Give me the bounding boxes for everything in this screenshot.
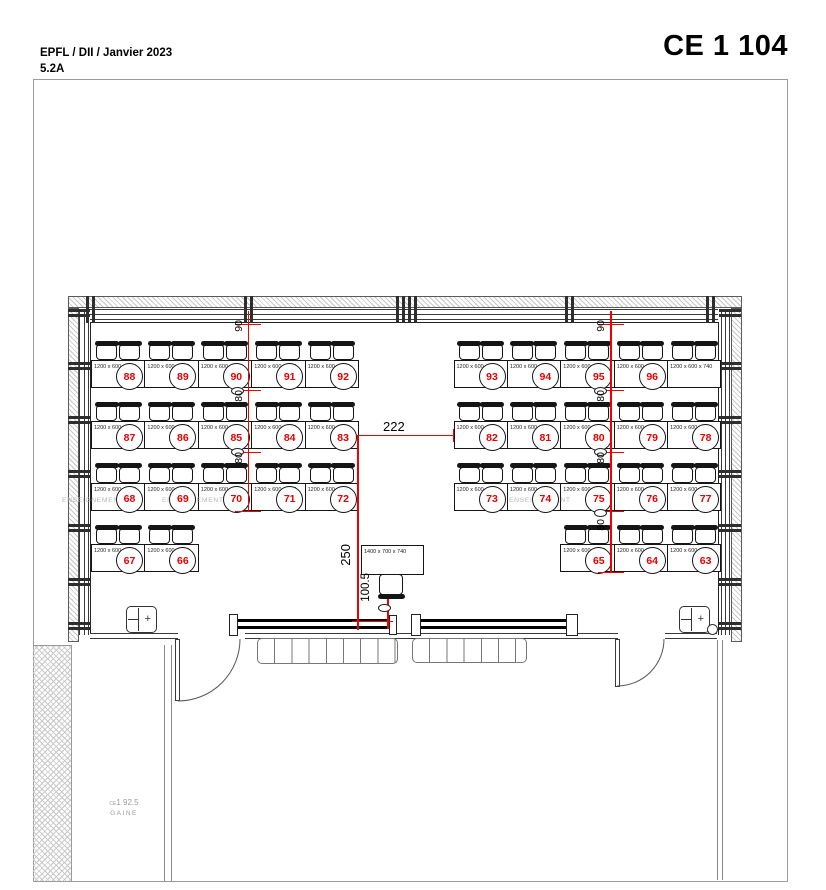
student-chair <box>172 405 193 421</box>
student-chair <box>149 467 170 483</box>
dimension-text-front: 250 <box>338 544 353 566</box>
student-chair <box>203 344 224 360</box>
student-chair <box>588 405 609 421</box>
student-chair <box>588 467 609 483</box>
student-chair <box>310 405 331 421</box>
student-chair <box>333 467 354 483</box>
student-chair <box>695 344 716 360</box>
student-chair <box>149 405 170 421</box>
student-chair <box>226 405 247 421</box>
shaft-code-number: 1 92.5 <box>116 798 138 807</box>
teacher-chair <box>379 574 403 595</box>
student-chair <box>256 467 277 483</box>
student-chair <box>119 405 140 421</box>
student-chair <box>535 405 556 421</box>
student-chair <box>695 405 716 421</box>
control-box-panel <box>128 608 139 631</box>
student-chair <box>333 344 354 360</box>
control-box-left <box>126 606 157 633</box>
door-stop-icon <box>707 624 718 635</box>
student-chair <box>119 528 140 544</box>
blackboard-left-bracket <box>389 615 397 635</box>
student-chair <box>642 405 663 421</box>
student-chair <box>256 344 277 360</box>
floor-box-icon <box>378 604 391 612</box>
student-chair <box>203 467 224 483</box>
blackboard-left-bracket <box>229 614 238 636</box>
student-chair <box>96 344 117 360</box>
student-chair <box>226 344 247 360</box>
student-chair <box>310 467 331 483</box>
student-chair <box>565 467 586 483</box>
dimension-text-right: 90 <box>595 320 607 332</box>
student-chair <box>459 467 480 483</box>
student-chair <box>482 405 503 421</box>
student-chair <box>459 405 480 421</box>
student-chair <box>96 467 117 483</box>
seat-number-88: 88 <box>116 363 143 390</box>
dimension-line-left-column <box>248 311 250 512</box>
seat-number-94: 94 <box>532 363 559 390</box>
dimension-text-aisle: 222 <box>383 419 405 434</box>
seat-number-76: 76 <box>639 486 666 513</box>
gaine-shaft-label: CE1 92.5 GAINE <box>93 798 155 817</box>
seat-number-85: 85 <box>223 424 250 451</box>
student-chair <box>619 405 640 421</box>
seat-number-68: 68 <box>116 486 143 513</box>
floor-box-icon <box>594 509 607 517</box>
seat-number-79: 79 <box>639 424 666 451</box>
student-chair <box>565 405 586 421</box>
student-chair <box>672 405 693 421</box>
blackboard-right <box>421 626 567 629</box>
dimension-text-right: 80 <box>595 452 607 464</box>
student-chair <box>672 467 693 483</box>
student-chair <box>535 467 556 483</box>
dimension-line-right-column <box>610 311 612 573</box>
student-chair <box>695 467 716 483</box>
blackboard-right <box>421 619 567 622</box>
dimension-line-front <box>357 435 359 630</box>
dimension-tick <box>235 511 261 513</box>
student-chair <box>96 405 117 421</box>
student-chair <box>619 528 640 544</box>
student-chair <box>695 528 716 544</box>
door-arc-right <box>617 639 664 686</box>
teacher-table-dim-label: 1400 x 700 x 740 <box>364 549 406 555</box>
student-chair <box>119 344 140 360</box>
student-chair <box>588 344 609 360</box>
student-chair <box>149 344 170 360</box>
seat-number-74: 74 <box>532 486 559 513</box>
student-chair <box>512 405 533 421</box>
student-chair <box>535 344 556 360</box>
zone-label-enseignement: ENSEIGNEMENT <box>62 497 124 504</box>
seat-number-73: 73 <box>479 486 506 513</box>
seat-number-78: 78 <box>692 424 719 451</box>
dimension-tick <box>453 429 455 442</box>
blackboard-right-bracket <box>566 614 578 636</box>
student-chair <box>203 405 224 421</box>
dimension-text-board: 100.5 <box>360 573 372 602</box>
seat-number-77: 77 <box>692 486 719 513</box>
seat-number-71: 71 <box>276 486 303 513</box>
student-chair <box>310 344 331 360</box>
blackboard-left <box>238 626 394 629</box>
seat-number-64: 64 <box>639 547 666 574</box>
seat-number-92: 92 <box>330 363 357 390</box>
control-box-panel <box>681 608 692 631</box>
seat-number-90: 90 <box>223 363 250 390</box>
seat-number-96: 96 <box>639 363 666 390</box>
desk-dim-label: 1200 x 600 x 740 <box>670 364 712 370</box>
seat-number-67: 67 <box>116 547 143 574</box>
seat-number-83: 83 <box>330 424 357 451</box>
dimension-line-aisle <box>358 435 454 437</box>
seat-number-81: 81 <box>532 424 559 451</box>
dimension-text-right: 80 <box>595 390 607 402</box>
student-chair <box>642 467 663 483</box>
control-box-right <box>679 606 710 633</box>
shaft-room-code: CE1 92.5 <box>93 798 155 807</box>
student-chair <box>512 467 533 483</box>
door-arc-left <box>178 639 240 701</box>
student-chair <box>672 528 693 544</box>
student-chair <box>172 467 193 483</box>
student-chair <box>226 467 247 483</box>
student-chair <box>279 405 300 421</box>
student-chair <box>619 344 640 360</box>
seat-number-72: 72 <box>330 486 357 513</box>
student-chair <box>565 344 586 360</box>
student-chair <box>642 528 663 544</box>
seat-number-93: 93 <box>479 363 506 390</box>
shaft-name: GAINE <box>93 810 155 817</box>
seat-number-69: 69 <box>169 486 196 513</box>
seat-number-63: 63 <box>692 547 719 574</box>
floor-plan-canvas: EPFL / DII / Janvier 2023 5.2A CE 1 104 <box>0 0 826 890</box>
seat-number-87: 87 <box>116 424 143 451</box>
student-chair <box>482 344 503 360</box>
student-chair <box>256 405 277 421</box>
student-chair <box>172 344 193 360</box>
student-chair <box>279 467 300 483</box>
student-chair <box>149 528 170 544</box>
dimension-text-right: 80 <box>595 519 607 531</box>
teacher-table: 1400 x 700 x 740 <box>361 545 424 575</box>
desk: 1200 x 600 x 740 <box>667 360 721 388</box>
student-chair <box>333 405 354 421</box>
student-chair <box>172 528 193 544</box>
dimension-text-left: 80 <box>233 452 245 464</box>
seat-number-70: 70 <box>223 486 250 513</box>
student-chair <box>119 467 140 483</box>
seat-number-84: 84 <box>276 424 303 451</box>
dimension-tick <box>598 572 624 574</box>
student-chair <box>512 344 533 360</box>
student-chair <box>672 344 693 360</box>
dimension-text-left: 80 <box>233 390 245 402</box>
seat-number-82: 82 <box>479 424 506 451</box>
student-chair <box>279 344 300 360</box>
student-chair <box>96 528 117 544</box>
student-chair <box>482 467 503 483</box>
dimension-text-left: 90 <box>233 320 245 332</box>
blackboard-right-bracket <box>411 614 421 636</box>
student-chair <box>642 344 663 360</box>
student-chair <box>565 528 586 544</box>
seat-number-91: 91 <box>276 363 303 390</box>
student-chair <box>619 467 640 483</box>
student-chair <box>459 344 480 360</box>
dimension-tick <box>352 621 393 623</box>
